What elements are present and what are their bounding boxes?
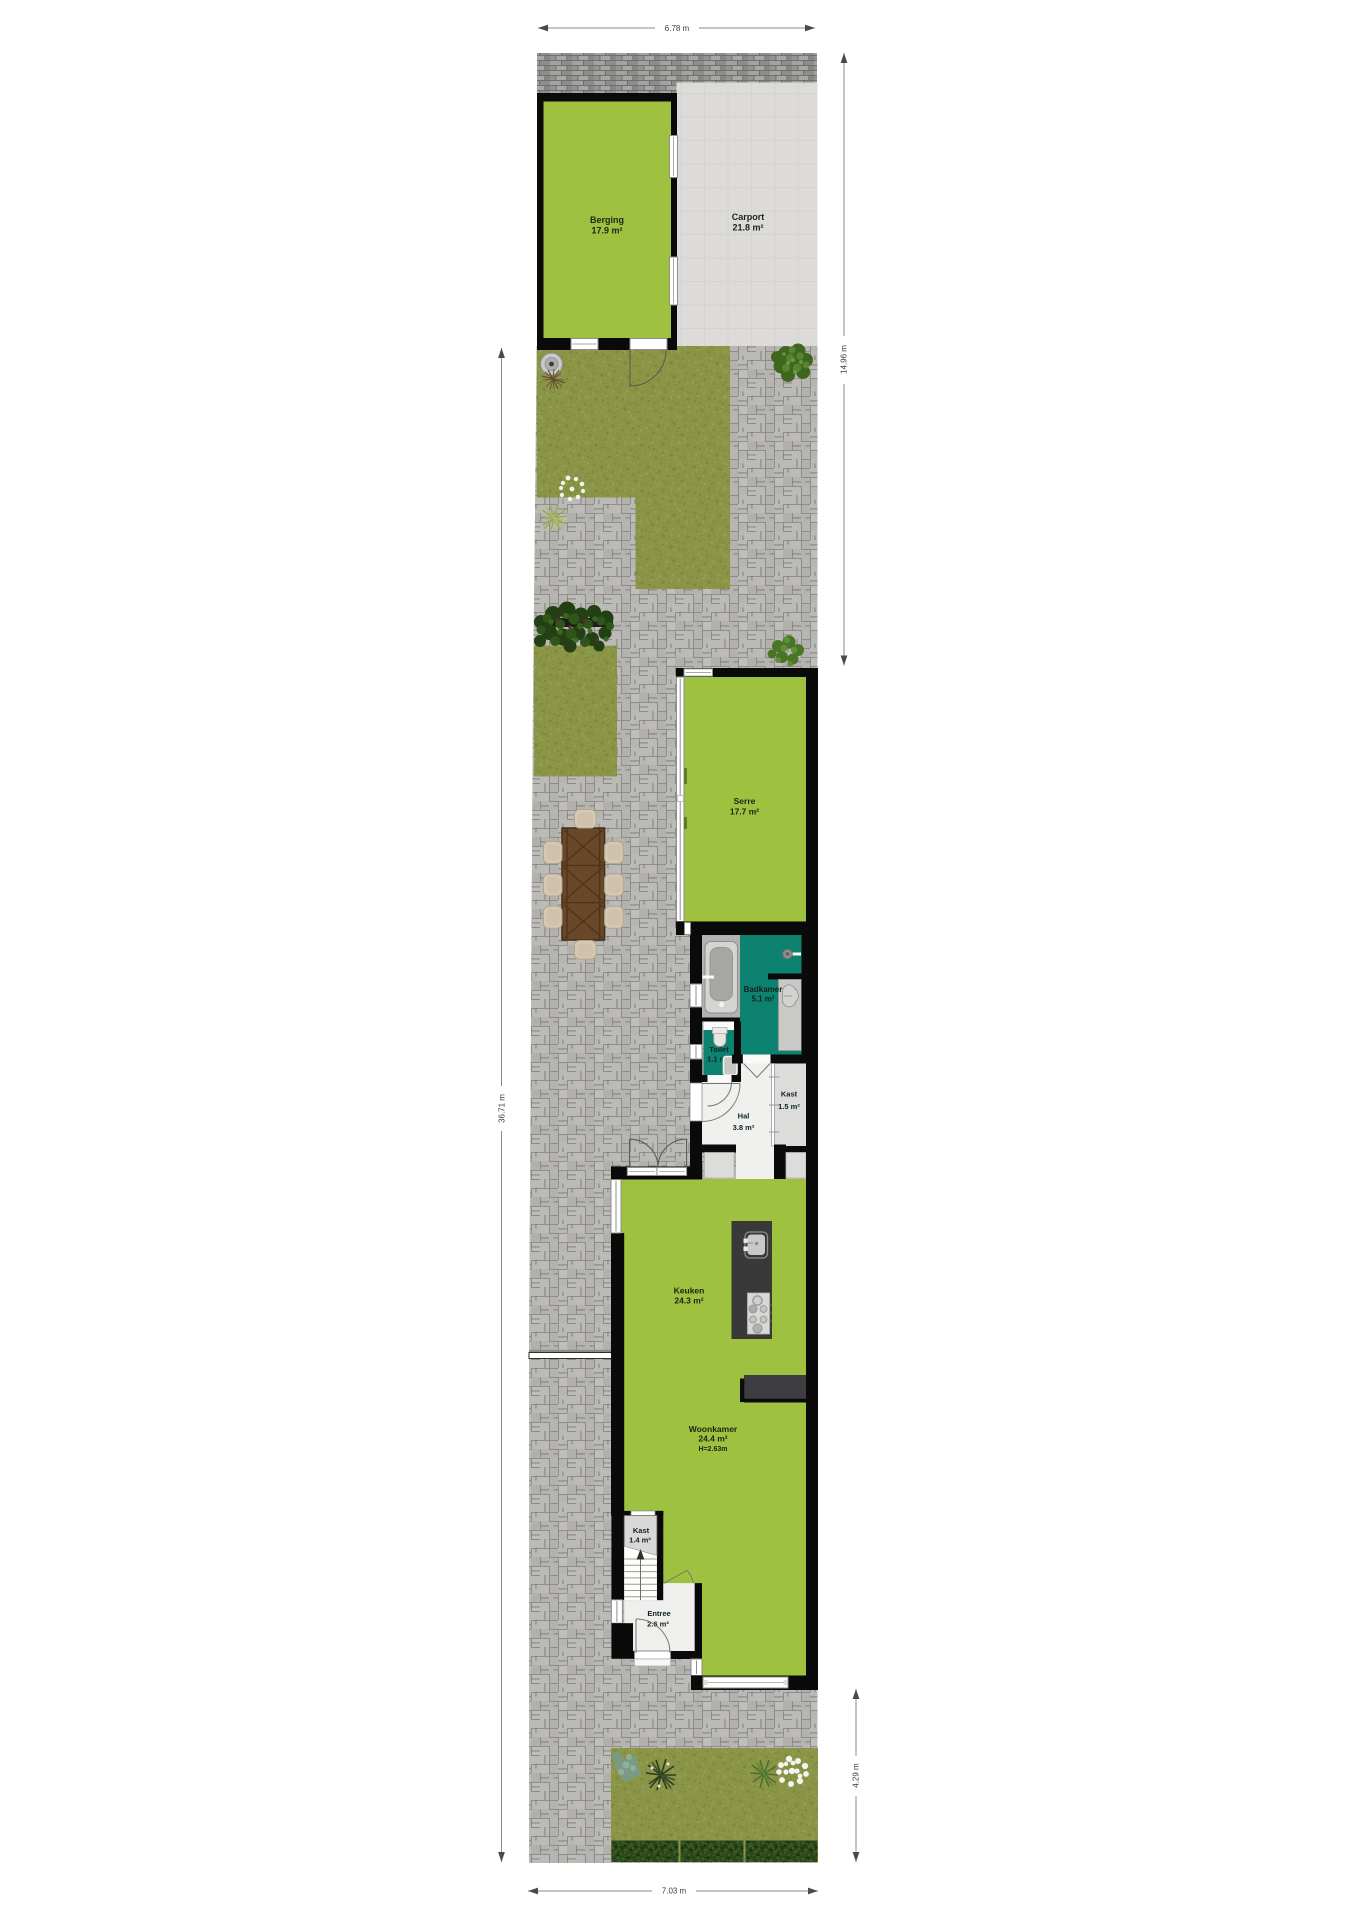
svg-text:Keuken: Keuken [674,1286,705,1296]
svg-text:Serre: Serre [734,796,756,806]
svg-text:Woonkamer: Woonkamer [689,1424,738,1434]
svg-text:1.5 m²: 1.5 m² [778,1102,800,1111]
svg-text:4.29 m: 4.29 m [852,1763,861,1788]
svg-text:36.71 m: 36.71 m [498,1094,507,1123]
svg-text:6.78 m: 6.78 m [665,24,690,33]
svg-text:24.4 m²: 24.4 m² [698,1434,727,1444]
svg-text:7.03 m: 7.03 m [662,1887,687,1896]
svg-text:Berging: Berging [590,215,624,225]
svg-text:24.3 m²: 24.3 m² [674,1296,703,1306]
svg-text:Kast: Kast [781,1090,798,1099]
svg-text:5.1 m²: 5.1 m² [751,995,774,1004]
svg-text:17.7 m²: 17.7 m² [730,807,759,817]
svg-text:14.96 m: 14.96 m [840,345,849,374]
svg-text:3.8 m²: 3.8 m² [733,1123,755,1132]
svg-text:1.4 m²: 1.4 m² [629,1536,651,1545]
svg-text:H=2.63m: H=2.63m [699,1446,728,1453]
svg-text:17.9 m²: 17.9 m² [591,226,622,236]
svg-text:Carport: Carport [732,212,765,222]
svg-text:Badkamer: Badkamer [744,985,783,994]
svg-text:21.8 m²: 21.8 m² [732,223,763,233]
svg-text:Hal: Hal [738,1112,750,1121]
svg-text:Kast: Kast [633,1526,650,1535]
svg-text:Entree: Entree [647,1609,670,1618]
